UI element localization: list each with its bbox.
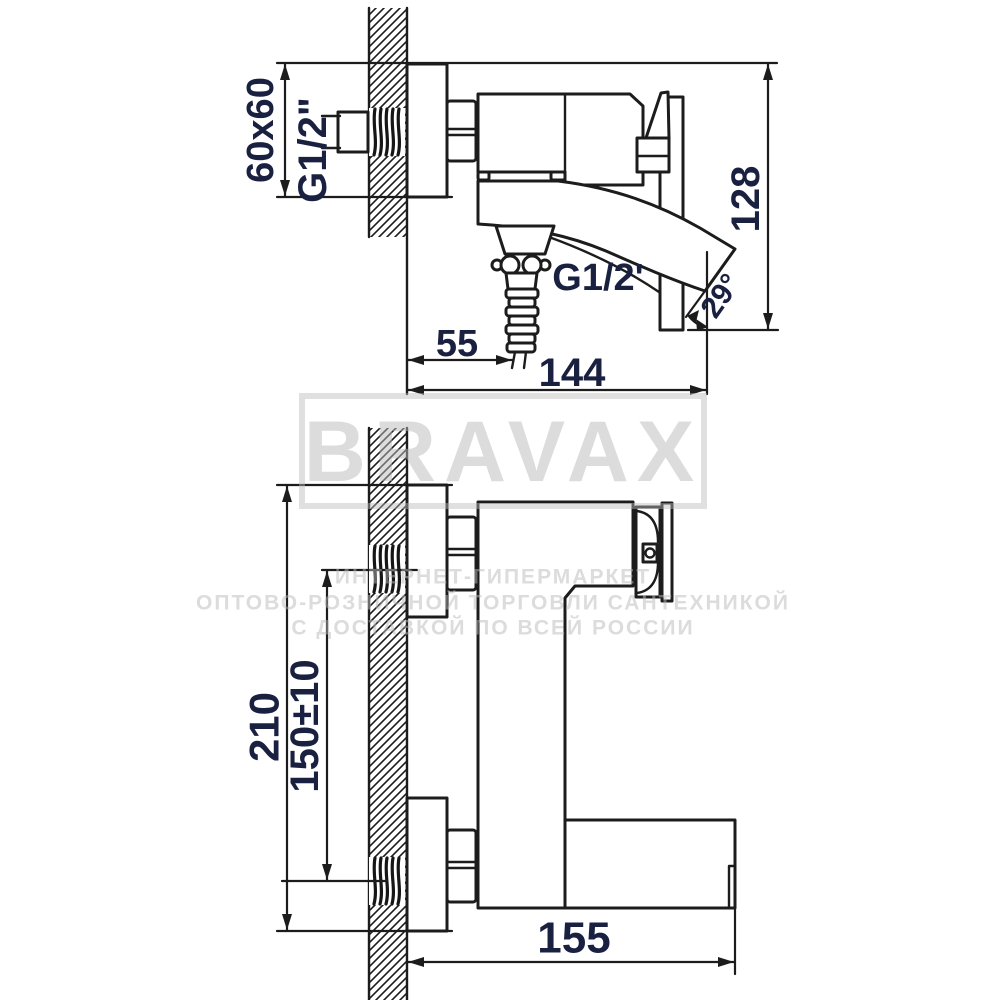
dim-plan-spout-reach: 155: [408, 908, 735, 974]
side-view: 60x60 G1/2" G1/2' 55 144 128: [240, 8, 778, 395]
spout-arm: [565, 820, 735, 908]
dim-overall-length-label: 210: [241, 692, 288, 762]
watermark-brand: BRAVAX: [304, 404, 702, 500]
hose-ball-left: [501, 256, 519, 274]
dim-inlet-spacing-label: 150±10: [283, 659, 327, 792]
dim-hose-offset-label: 55: [436, 323, 478, 365]
handle-lever-blade: [646, 92, 669, 138]
hose-end: [512, 352, 526, 368]
technical-drawing-page: 60x60 G1/2" G1/2' 55 144 128: [0, 0, 1000, 1000]
hose-collar: [506, 273, 537, 289]
escutcheon-plate: [407, 64, 447, 197]
pipe-stub: [338, 112, 368, 152]
spout-arm-plan: [565, 820, 735, 908]
hose-ball-right: [523, 256, 541, 274]
body-tab-right: [551, 172, 565, 180]
watermark-tagline-3: С ДОСТАВКОЙ ПО ВСЕЙ РОССИИ: [291, 616, 694, 640]
mounting-nut-side: [447, 101, 476, 161]
hose-ribs: [507, 343, 535, 352]
body-tab-left: [478, 172, 489, 180]
dim-plan-spout-reach-label: 155: [537, 914, 610, 963]
shower-outlet-hose: [492, 226, 554, 368]
watermark-tagline-1: ИНТЕРНЕТ-ГИПЕРМАРКЕТ: [335, 566, 651, 589]
dim-plate-size-label: 60x60: [240, 77, 282, 183]
handle-blade-edge: [662, 503, 672, 601]
watermark-tagline-2: ОПТОВО-РОЗНИЧНОЙ ТОРГОВЛИ САНТЕХНИКОЙ: [196, 591, 790, 615]
shower-cone: [496, 226, 554, 254]
wall-section: [369, 8, 407, 394]
dim-hose-offset: 55: [408, 323, 512, 365]
plan-view: 210 150±10 155: [241, 428, 736, 1000]
lower-plate: [407, 798, 447, 931]
dim-hose-thread-label: G1/2': [552, 257, 643, 299]
dim-spout-reach-label: 144: [539, 351, 606, 395]
wall-section-plan: [369, 428, 407, 1000]
faucet-dimension-drawing: 60x60 G1/2" G1/2' 55 144 128: [0, 0, 1000, 1000]
wall-hatch-plan: [369, 428, 407, 1000]
lower-nut: [447, 830, 476, 902]
dim-wall-thread-label: G1/2": [291, 97, 335, 203]
dim-height-label: 128: [724, 166, 768, 233]
